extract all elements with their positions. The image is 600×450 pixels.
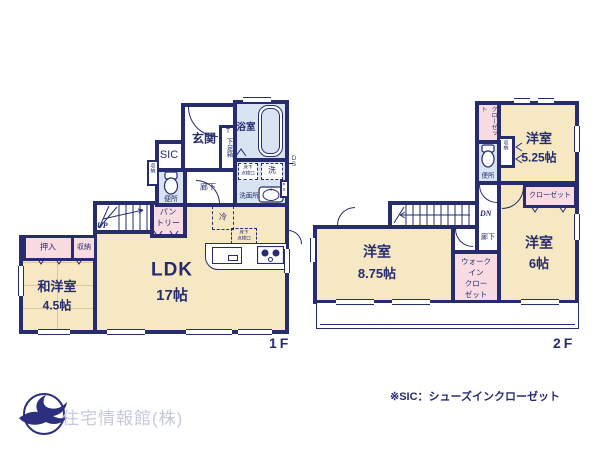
- window: [310, 238, 316, 262]
- window: [538, 98, 554, 104]
- shuno-1f-label: 収納: [77, 244, 91, 252]
- ldk-label: LDK: [151, 261, 193, 282]
- casement-window-arc: [288, 230, 302, 244]
- pantry-label-1: パン: [160, 209, 176, 218]
- window: [38, 329, 70, 335]
- window: [284, 249, 290, 273]
- bathtub: [258, 105, 283, 157]
- stairs-2f-treads: [392, 205, 475, 225]
- toilet-2f: [479, 144, 497, 168]
- sliding-door-marks: [36, 257, 86, 265]
- sliding-door-marks: [153, 230, 181, 238]
- floorplan-canvas: UP パン トリー 押入 収納 和洋室 4.5帖 T 下足箱 玄関 SIC 浴室…: [0, 0, 600, 450]
- bath-label: 浴室: [236, 123, 255, 133]
- kitchen-stove: [257, 246, 284, 264]
- pantry-label-2: トリー: [156, 220, 180, 229]
- bifold-door-marks: [515, 142, 523, 164]
- stairs-dn-label: DN: [480, 209, 492, 218]
- shoebox-label: 下足箱: [223, 138, 233, 158]
- window: [392, 299, 430, 305]
- ds-label: DS: [291, 156, 297, 168]
- window: [243, 97, 271, 103]
- wic-label-4: ゼット: [465, 291, 488, 299]
- wayoshitsu-label: 和洋室: [37, 280, 76, 294]
- wayoshitsu-size: 4.5帖: [43, 299, 72, 312]
- window: [514, 98, 530, 104]
- floor-label-1f: 1F: [269, 335, 291, 351]
- ds-tick: [287, 163, 293, 164]
- closet-vert-label: クローゼット: [478, 106, 498, 138]
- wic-label-2: イン: [469, 269, 484, 277]
- underfloor-access-1-l2: 点検口: [241, 172, 255, 177]
- window: [336, 299, 374, 305]
- yoshitsu-525-size: 5.25帖: [521, 151, 556, 164]
- benjo-1f-label: 便所: [164, 196, 178, 204]
- window: [574, 126, 580, 152]
- shoebox-t-label: T: [226, 128, 230, 136]
- underfloor-access-2-l2: 点検口: [237, 237, 251, 242]
- oshiire-label: 押入: [40, 244, 56, 253]
- sic-label: SIC: [160, 149, 178, 161]
- ldk-size: 17帖: [156, 288, 188, 305]
- casement-window-arc-2f: [337, 207, 355, 225]
- floor-label-2f: 2F: [553, 335, 575, 351]
- benjo-2f-label: 便所: [482, 172, 495, 179]
- wic-label-1: ウォーク: [461, 258, 491, 266]
- fridge-label: 冷: [219, 214, 227, 223]
- kitchen-sink: [212, 247, 242, 264]
- sic-note: ※SIC：シューズインクローゼット: [390, 388, 560, 404]
- company-name: 住宅情報館(株): [62, 404, 183, 429]
- yoshitsu-875-label: 洋室: [363, 244, 391, 259]
- window: [107, 329, 145, 335]
- senmenjo-label: 洗面所: [239, 192, 259, 199]
- shuno-niche-label: 収納: [150, 163, 157, 173]
- window: [521, 299, 559, 305]
- laundry-label: 洗: [268, 167, 276, 176]
- yoshitsu-6-label: 洋室: [525, 235, 553, 250]
- room-yoshitsu-875: [313, 225, 455, 304]
- wic-label-3: クロー: [465, 280, 488, 288]
- window: [238, 329, 272, 335]
- window: [186, 329, 232, 335]
- closet-2f-label: クローゼット: [529, 192, 571, 200]
- ps-label: PS: [282, 182, 287, 192]
- balcony: [316, 302, 579, 329]
- shuno-2f-label: 収納: [503, 140, 510, 150]
- bath-folding-door-icon: [235, 148, 247, 157]
- sliding-door-marks: [530, 205, 570, 213]
- toilet-1f: [161, 171, 181, 195]
- yoshitsu-525-label: 洋室: [526, 132, 552, 146]
- yoshitsu-875-size: 8.75帖: [358, 267, 396, 281]
- window: [18, 266, 24, 296]
- window: [574, 214, 580, 240]
- yoshitsu-6-size: 6帖: [529, 257, 549, 271]
- stairs-up-label: UP: [97, 221, 108, 230]
- rouka-2f-label: 廊下: [481, 234, 495, 242]
